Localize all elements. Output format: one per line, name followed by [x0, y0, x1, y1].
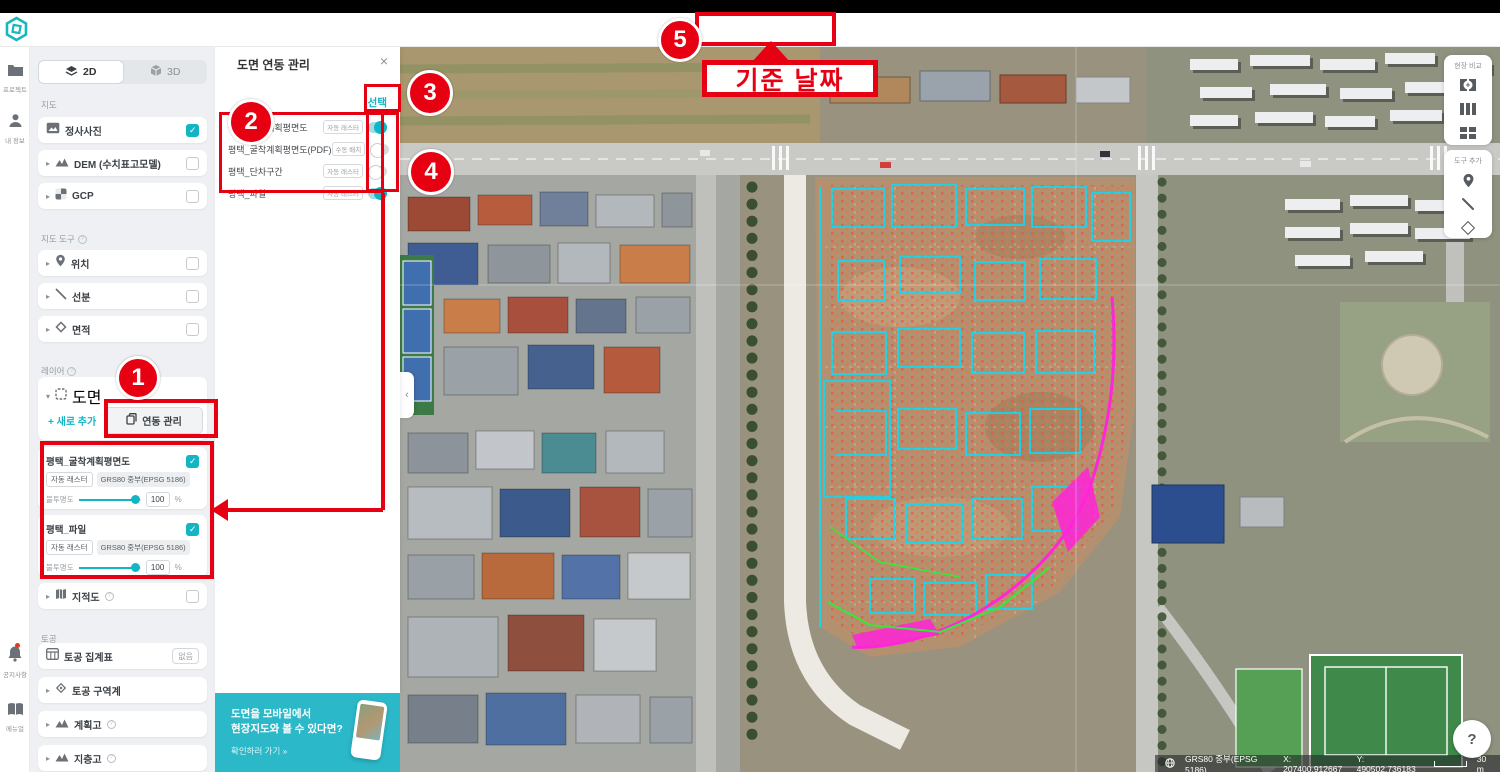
- tab-3d[interactable]: 3D: [124, 60, 208, 84]
- cadastral-map-icon: [55, 587, 67, 605]
- orthophoto-checkbox[interactable]: [186, 124, 199, 137]
- layer-gcp[interactable]: ▸ GCP: [38, 183, 207, 209]
- crs-label: GRS80 중부(EPSG 5186): [1185, 753, 1273, 772]
- chevron-right-icon: ▸: [46, 720, 50, 729]
- add-new-drawing-button[interactable]: + 새로 추가: [48, 413, 96, 428]
- notification-dot: [15, 643, 20, 648]
- line-tool-icon[interactable]: [1444, 192, 1492, 216]
- tool-segment[interactable]: ▸ 선분: [38, 283, 207, 309]
- annotation-box-toggles: [366, 112, 399, 192]
- chevron-down-icon[interactable]: ▾: [46, 392, 50, 401]
- meissa-logo-icon[interactable]: [4, 16, 29, 47]
- app-window: ← [meissa] demo site 2020년 11월 24일 (화) ›…: [0, 0, 1500, 772]
- plan-height-item[interactable]: ▸ 계획고: [38, 711, 207, 737]
- chevron-right-icon: ▸: [46, 159, 50, 168]
- section-layers: 레이어: [41, 365, 76, 377]
- map-canvas[interactable]: [400, 47, 1500, 772]
- cube-3d-icon: [150, 64, 162, 80]
- mobile-promo-banner[interactable]: 도면을 모바일에서 현장지도와 볼 수 있다면? 확인하러 가기 »: [215, 693, 400, 772]
- none-badge: 없음: [172, 648, 199, 664]
- mountains-icon: [55, 154, 69, 172]
- add-tool-label: 도구 추가: [1444, 156, 1492, 166]
- mountains-icon: [55, 749, 69, 767]
- tool-location[interactable]: ▸ 위치: [38, 250, 207, 276]
- help-button[interactable]: ?: [1453, 720, 1491, 758]
- dem-checkbox[interactable]: [186, 157, 199, 170]
- location-checkbox[interactable]: [186, 257, 199, 270]
- book-icon: [0, 702, 30, 721]
- drawing-icon: [55, 387, 67, 405]
- scale-bar: [1434, 761, 1467, 767]
- sidebar-item-projects[interactable]: 프로젝트: [0, 63, 30, 94]
- site-compare-card: 현장 비교 +: [1444, 55, 1492, 145]
- annotation-box-link-button: [104, 399, 218, 438]
- close-icon[interactable]: ×: [380, 53, 388, 69]
- globe-icon: [1165, 758, 1175, 770]
- compare-two-pane-icon[interactable]: +: [1444, 73, 1492, 97]
- layer-dem[interactable]: ▸ DEM (수치표고모델): [38, 150, 207, 176]
- nav-rail: 프로젝트 내 정보 공지사항 메뉴얼: [0, 47, 30, 772]
- table-icon: [46, 647, 59, 665]
- diamond-icon: [55, 320, 67, 338]
- chevron-right-icon: ▸: [46, 259, 50, 268]
- cadastral-checkbox[interactable]: [186, 590, 199, 603]
- annotation-callout-base-date: 기준 날짜: [702, 60, 878, 97]
- gcp-icon: [55, 187, 67, 205]
- site-compare-label: 현장 비교: [1444, 61, 1492, 71]
- annotation-circle-4: 4: [408, 149, 454, 195]
- image-icon: [46, 121, 60, 139]
- area-tool-icon[interactable]: [1444, 216, 1492, 240]
- annotation-box-select: [364, 84, 401, 112]
- chevron-right-icon: ▸: [46, 592, 50, 601]
- add-tool-card: 도구 추가: [1444, 150, 1492, 238]
- help-circle-icon[interactable]: [67, 367, 76, 376]
- help-circle-icon[interactable]: [107, 720, 116, 729]
- chevron-right-icon: ▸: [46, 754, 50, 763]
- map-status-bar: GRS80 중부(EPSG 5186) X: 207400.912667 Y: …: [1155, 755, 1500, 772]
- layer-orthophoto[interactable]: 정사사진: [38, 117, 207, 143]
- annotation-circle-3: 3: [407, 70, 453, 116]
- annotation-circle-1: 1: [116, 356, 160, 400]
- person-icon: [0, 113, 30, 133]
- bell-icon: [7, 645, 24, 667]
- layers-2d-icon: [65, 65, 78, 80]
- gcp-checkbox[interactable]: [186, 190, 199, 203]
- chevron-right-icon: ▸: [46, 292, 50, 301]
- zone-diamond-icon: [55, 681, 67, 699]
- compare-four-pane-icon[interactable]: [1444, 121, 1492, 145]
- annotation-box-layer-cards: [40, 441, 214, 579]
- segment-checkbox[interactable]: [186, 290, 199, 303]
- help-circle-icon[interactable]: [105, 592, 114, 601]
- banner-link[interactable]: 확인하러 가기 »: [231, 745, 287, 757]
- area-checkbox[interactable]: [186, 323, 199, 336]
- chevron-right-icon: ▸: [46, 325, 50, 334]
- folder-icon: [0, 63, 30, 82]
- earthwork-zone-item[interactable]: ▸ 토공 구역계: [38, 677, 207, 703]
- section-map: 지도: [41, 99, 57, 111]
- annotation-connector-vertical: [381, 193, 385, 510]
- popup-title: 도면 연동 관리: [237, 56, 310, 73]
- coord-x: X: 207400.912667: [1283, 754, 1346, 772]
- pin-tool-icon[interactable]: [1444, 168, 1492, 192]
- phone-graphic: [350, 699, 388, 761]
- chevron-right-icon: ▸: [46, 192, 50, 201]
- sidebar-item-my-info[interactable]: 내 정보: [0, 113, 30, 145]
- panel-collapse-button[interactable]: ‹: [400, 372, 414, 418]
- tool-area[interactable]: ▸ 면적: [38, 316, 207, 342]
- sidebar-item-notices[interactable]: 공지사항: [0, 645, 30, 679]
- mountains-icon: [55, 715, 69, 733]
- annotation-connector-horizontal: [227, 508, 383, 512]
- annotation-circle-5: 5: [658, 18, 702, 62]
- pin-icon: [55, 254, 66, 272]
- layer-cadastral[interactable]: ▸ 지적도: [38, 583, 207, 609]
- sidebar-item-manual[interactable]: 메뉴얼: [0, 702, 30, 733]
- line-icon: [55, 287, 67, 305]
- view-mode-toggle: 2D 3D: [38, 60, 207, 84]
- chevron-right-icon: ▸: [46, 686, 50, 695]
- coord-y: Y: 490502.736183: [1357, 754, 1420, 772]
- annotation-arrowhead-left: [211, 499, 228, 521]
- section-map-tools: 지도 도구: [41, 233, 87, 245]
- help-circle-icon[interactable]: [78, 235, 87, 244]
- strata-height-item[interactable]: ▸ 지층고: [38, 745, 207, 771]
- annotation-circle-2: 2: [228, 99, 274, 145]
- tab-2d[interactable]: 2D: [38, 60, 124, 84]
- compare-three-pane-icon[interactable]: [1444, 97, 1492, 121]
- help-circle-icon[interactable]: [107, 754, 116, 763]
- earthwork-table-item[interactable]: 토공 집계표 없음: [38, 643, 207, 669]
- banner-text: 도면을 모바일에서 현장지도와 볼 수 있다면?: [231, 707, 343, 737]
